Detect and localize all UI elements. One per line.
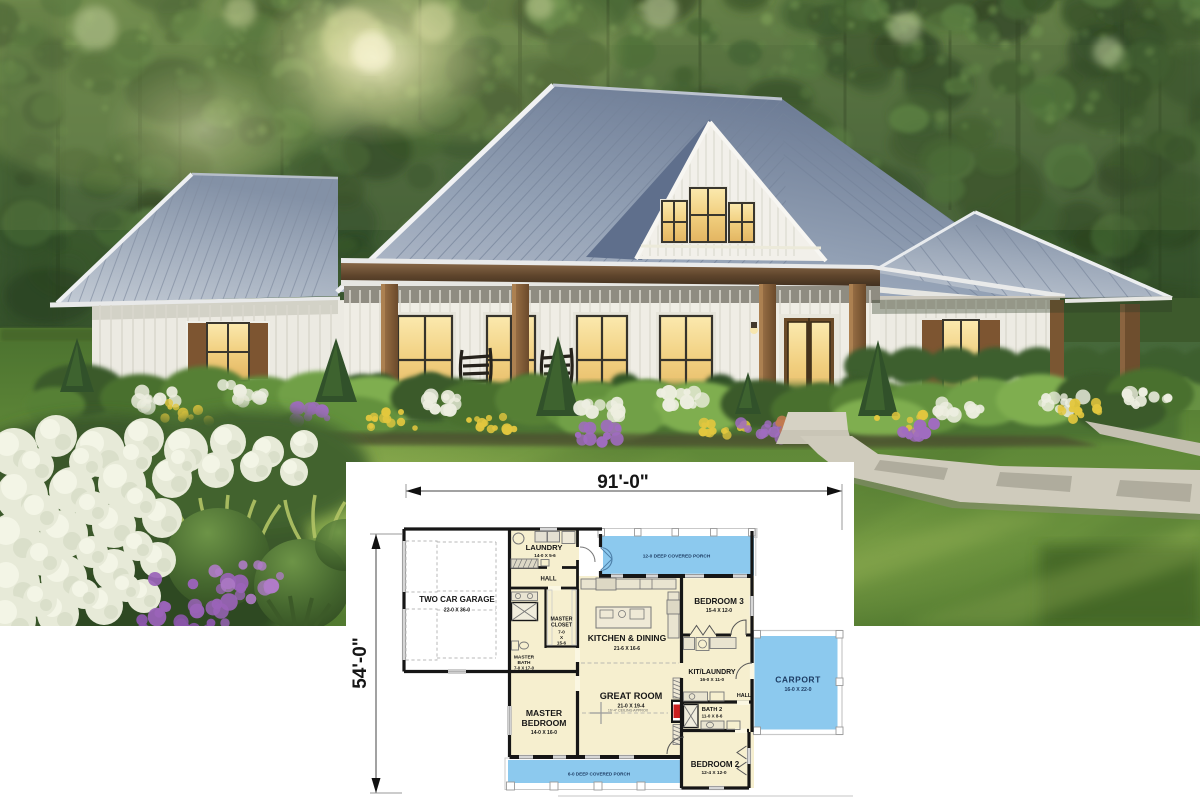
svg-text:BATH 2: BATH 2 [702,707,723,713]
svg-text:15-4 X 12-0: 15-4 X 12-0 [706,608,732,614]
svg-text:MASTER: MASTER [526,708,563,718]
svg-text:HALL: HALL [541,577,557,583]
svg-text:12-0 DEEP COVERED PORCH: 12-0 DEEP COVERED PORCH [643,554,711,560]
svg-text:BEDROOM 3: BEDROOM 3 [694,597,744,606]
svg-text:16'-4" CEILING APPROX: 16'-4" CEILING APPROX [608,709,649,713]
svg-text:11-0 X 8-6: 11-0 X 8-6 [702,714,723,719]
svg-text:6-0 DEEP COVERED PORCH: 6-0 DEEP COVERED PORCH [568,772,631,777]
svg-text:54'-0": 54'-0" [350,637,371,689]
svg-text:7-0 X 17-0: 7-0 X 17-0 [514,666,535,671]
svg-text:12-4 X 12-0: 12-4 X 12-0 [701,770,726,776]
svg-text:LAUNDRY: LAUNDRY [526,543,563,552]
svg-text:CLOSET: CLOSET [551,623,573,629]
svg-text:GREAT ROOM: GREAT ROOM [600,691,663,701]
svg-text:7-0: 7-0 [558,630,565,635]
svg-text:MASTER: MASTER [514,655,535,661]
svg-text:HALL: HALL [737,693,752,699]
svg-text:CARPORT: CARPORT [775,675,821,685]
svg-text:TWO CAR GARAGE: TWO CAR GARAGE [419,595,495,604]
svg-text:KIT/LAUNDRY: KIT/LAUNDRY [688,669,736,676]
svg-text:22-0 X 36-0: 22-0 X 36-0 [444,608,470,614]
svg-text:14-0 X 5-6: 14-0 X 5-6 [534,553,556,558]
svg-text:91'-0": 91'-0" [597,472,649,493]
svg-text:BEDROOM: BEDROOM [522,718,567,728]
svg-text:15-6: 15-6 [557,641,567,646]
svg-text:16-0 X 11-0: 16-0 X 11-0 [700,677,725,682]
svg-text:BEDROOM 2: BEDROOM 2 [691,760,740,769]
svg-text:16-0 X 22-0: 16-0 X 22-0 [784,687,811,693]
svg-text:14-0 X 16-0: 14-0 X 16-0 [531,730,557,736]
svg-text:KITCHEN & DINING: KITCHEN & DINING [588,633,667,643]
svg-text:21-6 X 16-6: 21-6 X 16-6 [614,646,640,652]
